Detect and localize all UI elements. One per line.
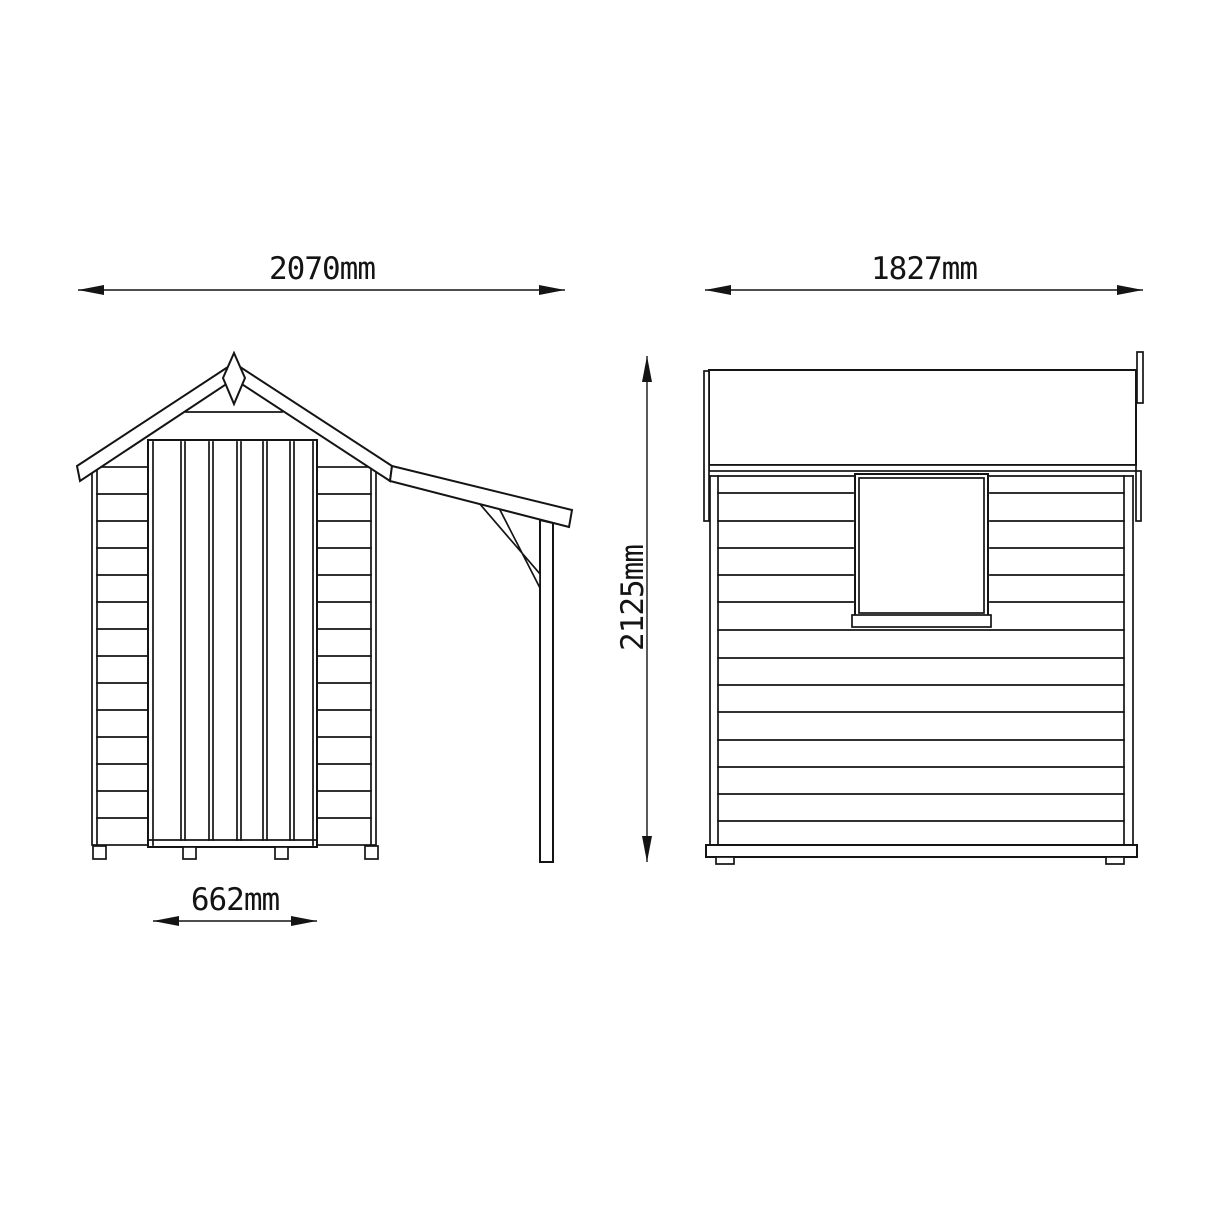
side-window-sill <box>852 615 991 627</box>
side-roof-panel <box>709 370 1136 465</box>
side-feet <box>716 857 1124 864</box>
shed-technical-drawing: 2070mm <box>0 0 1221 1221</box>
side-window-glass <box>859 478 984 613</box>
side-elevation: 1827mm <box>704 251 1143 864</box>
door <box>148 440 317 847</box>
arrow-left-icon <box>153 916 179 926</box>
arrow-right-icon <box>539 285 565 295</box>
arrow-left-icon <box>78 285 104 295</box>
side-window <box>852 474 991 627</box>
foot <box>716 857 734 864</box>
arrow-left-icon <box>705 285 731 295</box>
foot <box>365 846 378 859</box>
front-elevation: 2070mm <box>77 251 572 926</box>
foot <box>1106 857 1124 864</box>
side-depth-label: 1827mm <box>871 251 977 287</box>
arrow-down-icon <box>642 836 652 862</box>
side-cladding-upper-right <box>990 493 1124 602</box>
arrow-right-icon <box>291 916 317 926</box>
overall-height-label: 2125mm <box>615 545 651 651</box>
log-store <box>390 466 572 862</box>
rear-finial-edge <box>1137 352 1143 403</box>
log-store-post <box>540 520 553 862</box>
technical-drawing-page: 2070mm <box>0 0 1221 1221</box>
front-width-dimension: 2070mm <box>78 251 565 295</box>
log-store-roof-beam <box>390 466 572 527</box>
side-cladding-upper-left <box>718 493 853 602</box>
side-roof-fascia <box>709 465 1136 471</box>
arrow-right-icon <box>1117 285 1143 295</box>
side-cladding-lower <box>718 630 1124 821</box>
door-width-label: 662mm <box>191 882 280 918</box>
rear-bargeboard-edge <box>1136 471 1141 521</box>
door-outline <box>148 440 317 847</box>
foot <box>275 847 288 859</box>
front-bargeboard-edge <box>704 371 709 521</box>
front-width-label: 2070mm <box>269 251 375 287</box>
side-depth-dimension: 1827mm <box>705 251 1143 295</box>
foot <box>93 846 106 859</box>
foot <box>183 847 196 859</box>
side-base-bearer <box>706 845 1137 857</box>
height-dimension: 2125mm <box>615 356 652 862</box>
arrow-up-icon <box>642 356 652 382</box>
door-width-dimension: 662mm <box>153 882 317 926</box>
roof-finial <box>223 353 245 404</box>
